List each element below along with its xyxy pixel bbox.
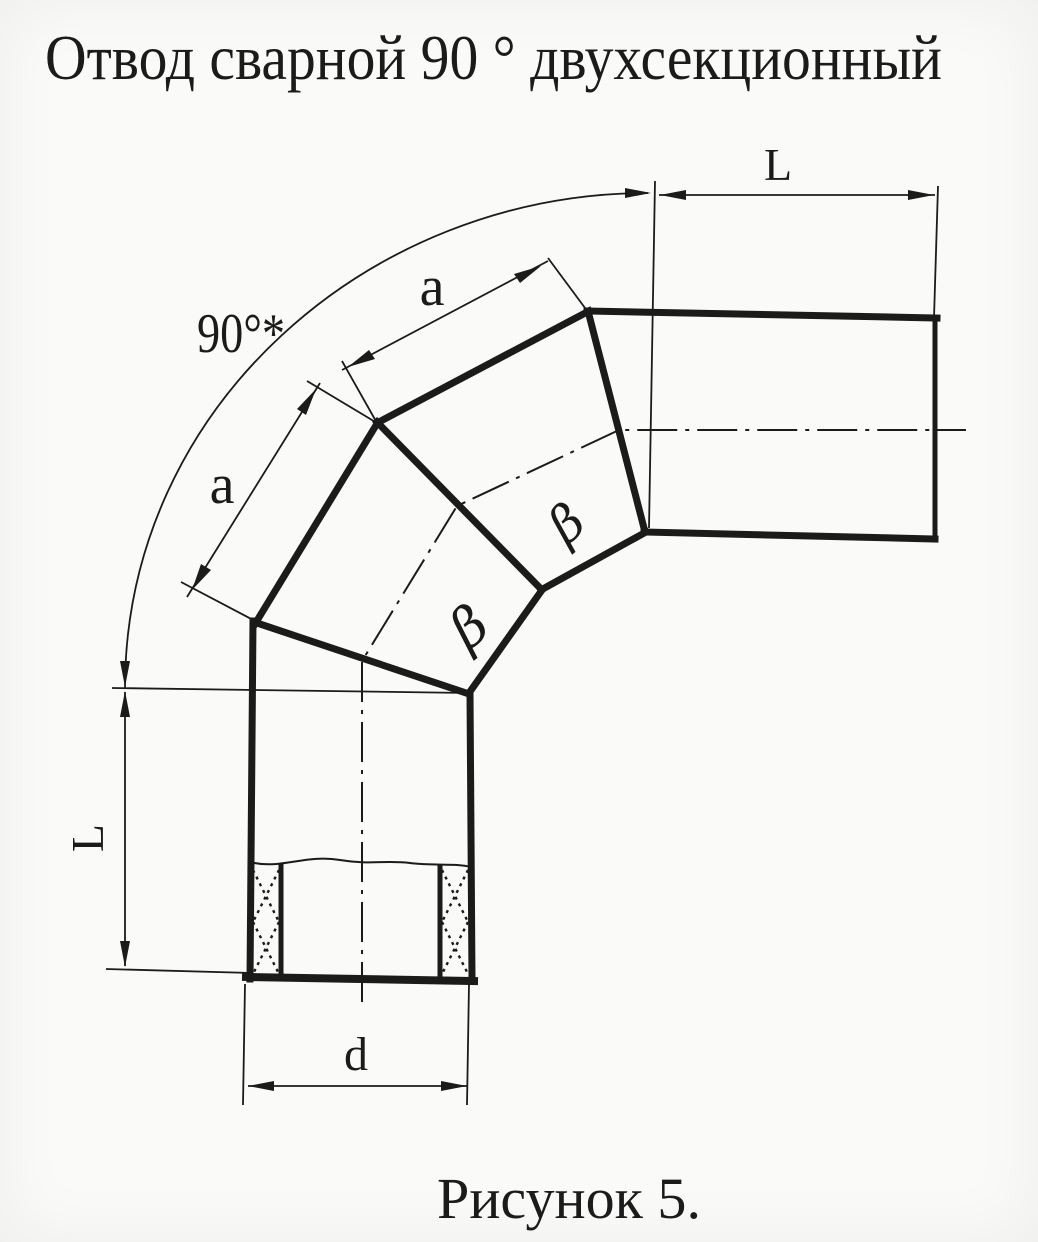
wall-hatching [253,870,468,974]
a-upper-arrowhead-low [348,350,375,367]
length-label-top: L [764,139,792,190]
bevel-angle-label-lower: β [436,592,501,662]
extension-line-a-upper-2 [548,258,588,312]
elbow-drawing: Отвод сварной 90 ° двухсекционный Рисуно… [0,0,1038,1242]
pipe-outline [246,311,937,981]
arc-arrowhead-top [625,188,651,198]
weld-seam-middle [377,422,542,590]
right-pipe-bottom-edge [644,532,935,539]
drawing-sheet: Отвод сварной 90 ° двухсекционный Рисуно… [0,0,1038,1242]
bevel-angle-label-upper: β [535,492,596,556]
a-lower-arrowhead-low [192,564,211,590]
extension-line-pipe-end-top [934,186,938,318]
L-top-arrowhead-left [660,190,686,200]
a-lower-arrowhead-high [297,389,316,415]
bottom-pipe-left-edge [250,621,253,979]
right-pipe-top-edge [587,311,937,318]
angle-label: 90°* [197,303,285,365]
gore-2-outer-edge [377,311,589,423]
arc-arrowhead-bottom [120,661,130,687]
L-top-arrowhead-right [908,190,934,200]
L-left-arrowhead-top [120,691,130,717]
extension-line-d-left [243,984,245,1105]
length-label-left: L [62,824,113,852]
a-upper-arrowhead-high [514,266,541,283]
angle-arc [125,193,648,688]
segment-label-upper: a [420,256,445,318]
extension-line-a-upper-1 [342,361,377,423]
pipe-axis-centerline [362,430,966,1002]
dimension-line-a-lower [187,383,320,597]
extension-line-L-left-bottom [106,969,252,973]
d-arrowhead-right [441,1081,467,1091]
diameter-label: d [344,1028,368,1081]
extension-line-L-left-top [112,688,469,693]
weld-seam-upper [588,311,645,532]
segment-label-lower: a [210,454,235,516]
extension-line-d-right [467,984,469,1105]
figure-caption: Рисунок 5. [437,1166,701,1231]
page-title: Отвод сварной 90 ° двухсекционный [45,22,942,93]
d-arrowhead-left [248,1081,274,1091]
gore-1-outer-edge [255,422,378,624]
centerlines [362,430,966,1002]
L-left-arrowhead-bottom [120,941,130,967]
extension-line-weld-top [649,181,655,528]
gore-2-inner-edge [541,532,646,590]
bottom-pipe-right-edge [470,693,472,979]
